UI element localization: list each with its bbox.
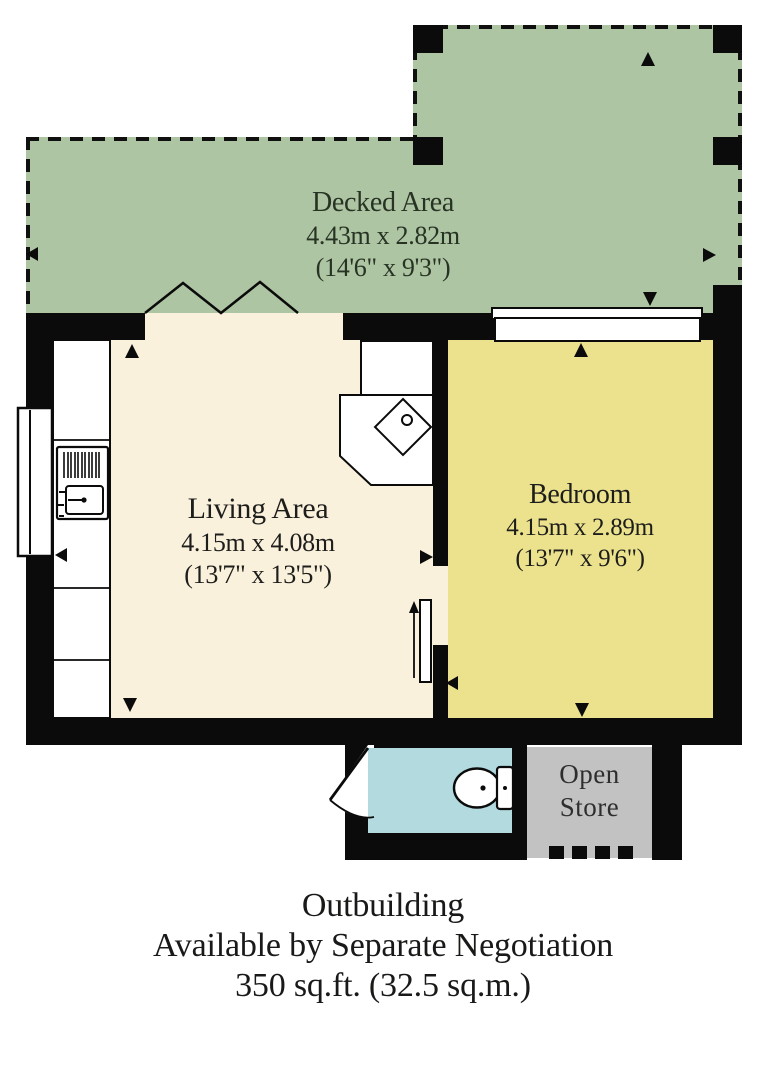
living-area-dims-imperial: (13'7" x 13'5"): [78, 559, 438, 591]
plan-caption: Outbuilding Available by Separate Negoti…: [33, 886, 733, 1006]
corner-desk-upper: [361, 341, 433, 395]
deck-post: [413, 25, 443, 53]
open-store-right-wall: [652, 745, 682, 860]
open-store-label: Open Store: [527, 758, 652, 824]
toilet-bowl-dot: [480, 785, 485, 790]
decked-area-label: Decked Area 4.43m x 2.82m (14'6" x 9'3"): [183, 186, 583, 284]
deck-post: [713, 285, 742, 313]
open-store-dash: [595, 846, 610, 859]
open-store-dash: [618, 846, 633, 859]
deck-post: [713, 137, 742, 165]
bedroom-label: Bedroom 4.15m x 2.89m (13'7" x 9'6"): [420, 478, 740, 574]
caption-negotiation: Available by Separate Negotiation: [33, 926, 733, 966]
deck-post: [413, 137, 443, 165]
bedroom-title: Bedroom: [420, 478, 740, 512]
living-area-title: Living Area: [78, 490, 438, 527]
sliding-door-icon: [420, 600, 431, 682]
bifold-opening: [145, 313, 343, 341]
toilet-icon: [454, 769, 500, 808]
living-area-dims-metric: 4.15m x 4.08m: [78, 527, 438, 559]
open-store-line1: Open: [527, 758, 652, 791]
open-store-dash: [572, 846, 587, 859]
caption-area: 350 sq.ft. (32.5 sq.m.): [33, 966, 733, 1006]
decked-area-dims-metric: 4.43m x 2.82m: [183, 220, 583, 252]
bedroom-window-icon: [495, 318, 700, 341]
desk-basin-dot: [402, 415, 412, 425]
toilet-cistern-dot: [503, 786, 507, 790]
decked-area-dims-imperial: (14'6" x 9'3"): [183, 252, 583, 284]
caption-title: Outbuilding: [33, 886, 733, 926]
floorplan-canvas: Decked Area 4.43m x 2.82m (14'6" x 9'3")…: [0, 0, 766, 1080]
decked-area-title: Decked Area: [183, 186, 583, 220]
bedroom-dims-metric: 4.15m x 2.89m: [420, 512, 740, 543]
kitchen-window-icon: [18, 408, 52, 556]
open-store-dash: [549, 846, 564, 859]
bedroom-dims-imperial: (13'7" x 9'6"): [420, 543, 740, 574]
open-store-line2: Store: [527, 791, 652, 824]
deck-post: [713, 25, 742, 53]
living-area-label: Living Area 4.15m x 4.08m (13'7" x 13'5"…: [78, 490, 438, 591]
